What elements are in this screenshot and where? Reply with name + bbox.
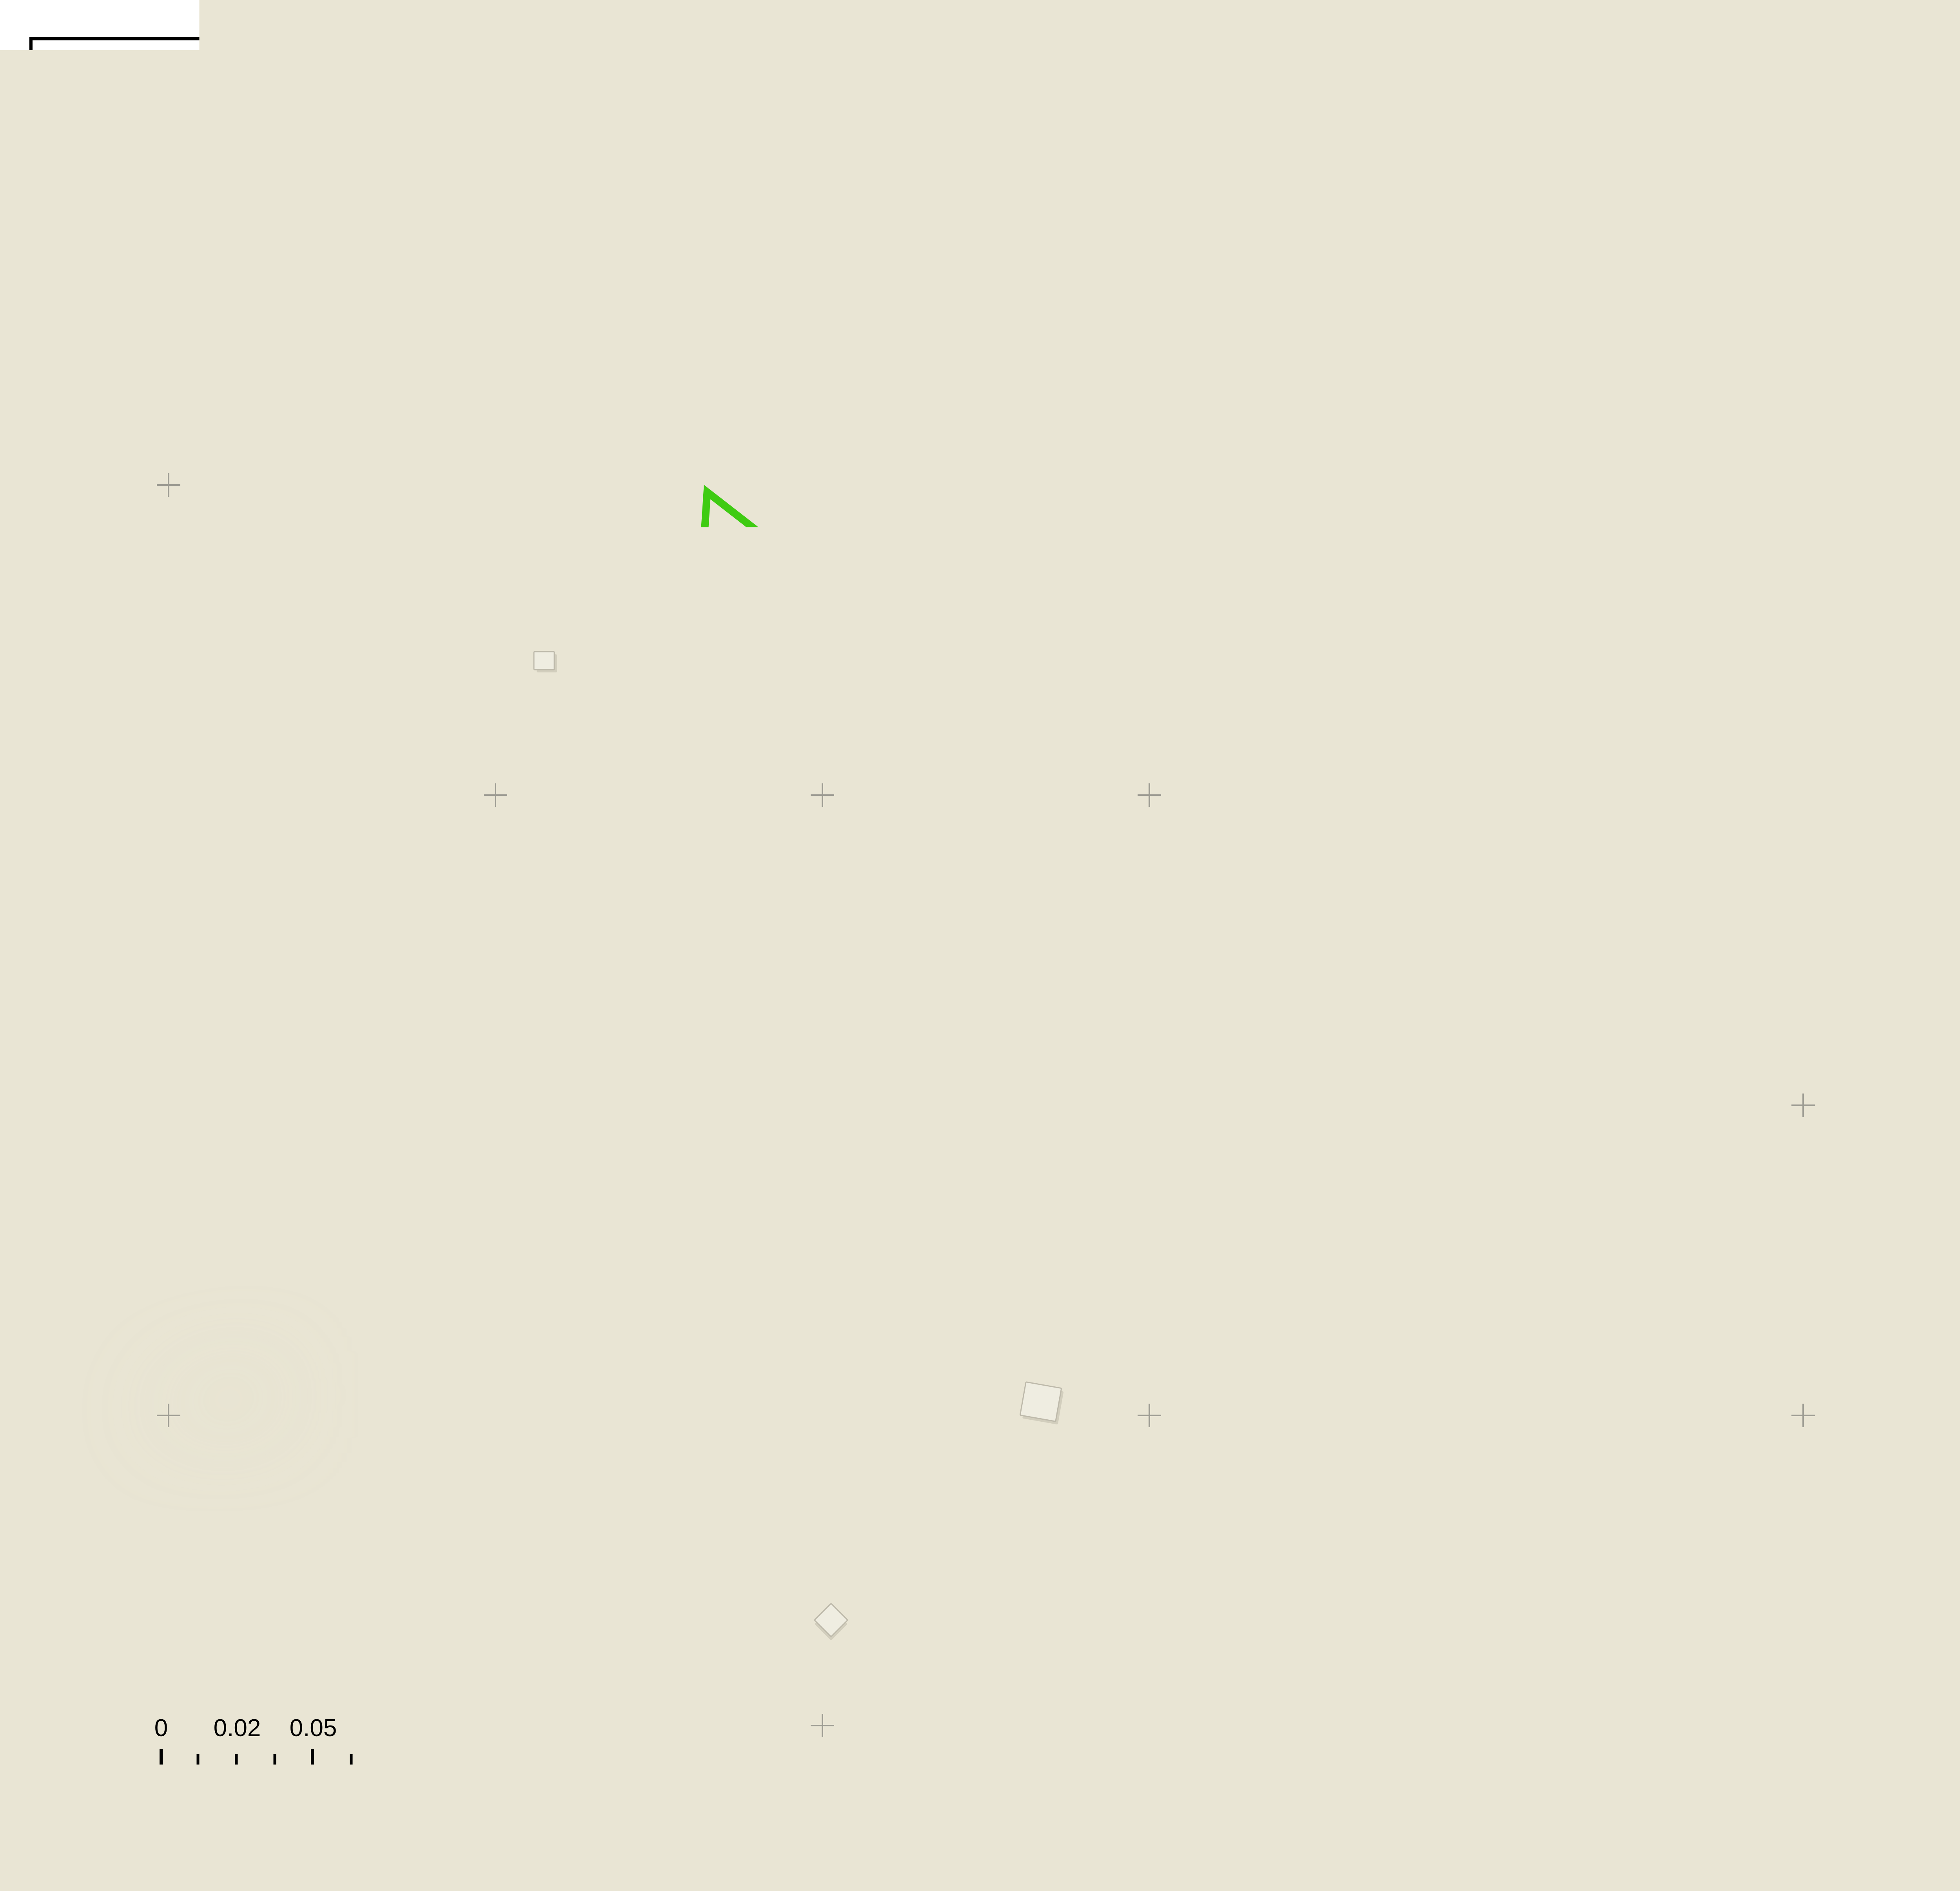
compass-s-label: S (170, 407, 185, 432)
x-axis-label-bottom: 586600 (1763, 1838, 1844, 1866)
building-footprint (603, 1607, 641, 1647)
svg-text:Municipal: Municipal (889, 1094, 989, 1121)
map-sheet: CONAP Parque Regional Municipal Txinivak… (0, 0, 1960, 1891)
building-footprint (534, 652, 557, 672)
map-canvas: N E O S PETÉN Parque Regional Municipal … (58, 225, 1960, 1830)
x-axis-tick (1149, 214, 1151, 225)
x-axis-label: 586200 (455, 188, 536, 216)
svg-text:Regional: Regional (892, 1063, 986, 1090)
x-axis-tick (168, 214, 170, 225)
svg-text:Parque: Parque (900, 1035, 976, 1061)
building-footprint (730, 1167, 755, 1188)
x-axis-tick-bottom (1149, 1830, 1151, 1841)
svg-text:Kilómetros: Kilómetros (500, 1715, 615, 1742)
svg-text:0: 0 (154, 1715, 168, 1742)
building-footprint (1020, 1382, 1064, 1425)
map-drawing: N E O S PETÉN Parque Regional Municipal … (63, 229, 1960, 1826)
x-axis-tick-bottom (168, 1830, 170, 1841)
svg-text:0.02: 0.02 (214, 1715, 261, 1742)
x-axis-tick-bottom (1475, 1830, 1477, 1841)
x-axis-label: 586300 (782, 188, 863, 216)
y-axis-tick (47, 1725, 58, 1727)
x-axis-tick (1802, 214, 1804, 225)
x-axis-label: 586600 (1763, 188, 1844, 216)
x-axis-label-bottom: 586400 (1109, 1838, 1190, 1866)
header-bar: CONAP Parque Regional Municipal Txinivak… (29, 37, 1960, 163)
svg-text:Txinivakán: Txinivakán (882, 1124, 995, 1150)
x-axis-label: 586500 (1436, 188, 1517, 216)
x-axis-label-bottom: 586200 (455, 1838, 536, 1866)
x-axis-tick-bottom (495, 1830, 497, 1841)
building-footprint (680, 1173, 709, 1209)
y-axis-tick (47, 794, 58, 796)
x-axis-tick-bottom (1802, 1830, 1804, 1841)
building-footprint (131, 785, 156, 804)
compass-e-label: E (253, 312, 273, 345)
svg-text:0.1: 0.1 (446, 1715, 480, 1742)
compass-o-label: O (80, 312, 103, 345)
x-axis-label-bottom: 586500 (1436, 1838, 1517, 1866)
x-axis-label-bottom: 586100 (128, 1838, 209, 1866)
x-axis-tick (1475, 214, 1477, 225)
x-axis-label: 586400 (1109, 188, 1190, 216)
svg-text:0.05: 0.05 (290, 1715, 337, 1742)
x-axis-label: 586100 (128, 188, 209, 216)
compass-n-label: N (167, 229, 188, 260)
x-axis-tick (495, 214, 497, 225)
department-label: PETÉN (924, 997, 1123, 1041)
y-axis-tick (47, 484, 58, 486)
page-title: Parque Regional Municipal Txinivakán (33, 78, 1960, 140)
map-frame: 5861005861005862005862005863005863005864… (24, 178, 1960, 1867)
building-footprint (323, 674, 352, 709)
x-axis-tick-bottom (822, 1830, 824, 1841)
building-footprint (186, 865, 223, 907)
x-axis-label-bottom: 586300 (782, 1838, 863, 1866)
y-axis-tick (47, 1104, 58, 1106)
y-axis-tick (47, 1415, 58, 1417)
x-axis-tick (822, 214, 824, 225)
